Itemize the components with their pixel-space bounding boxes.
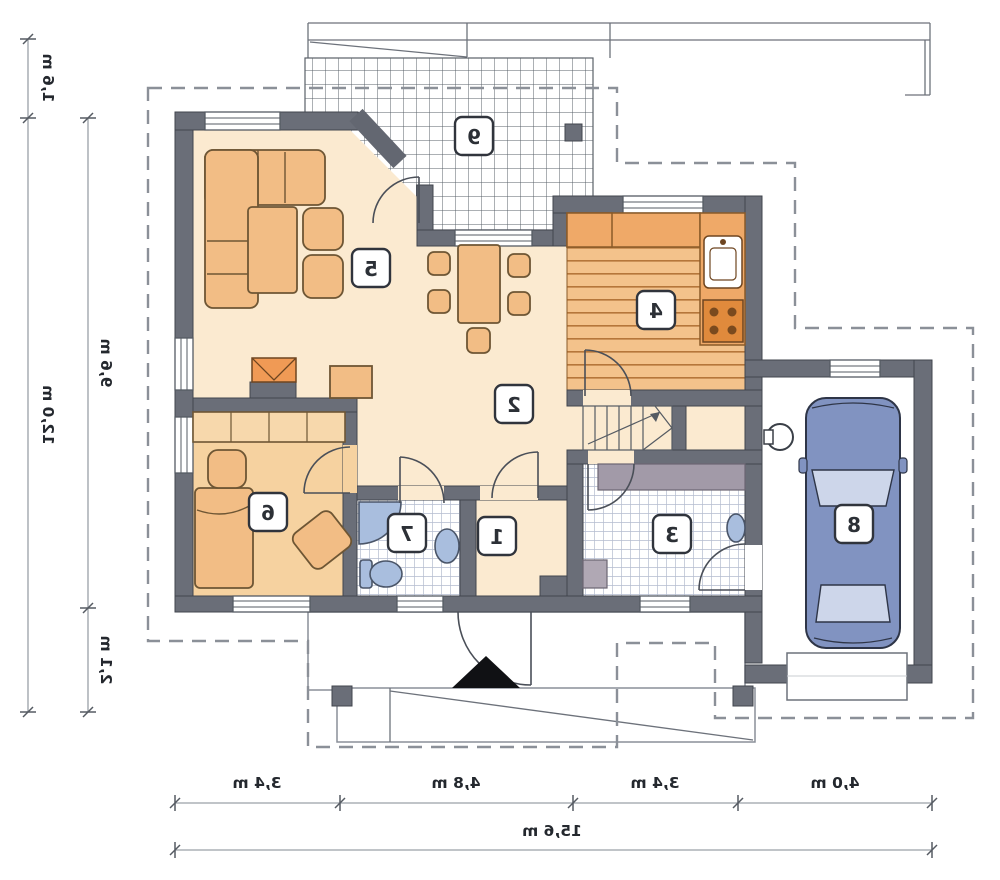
porch-post — [733, 686, 753, 706]
armchair — [303, 255, 343, 298]
room-label-1: 1 — [478, 517, 516, 555]
window — [233, 596, 310, 612]
left-dim-ticks — [20, 34, 96, 717]
window — [455, 230, 532, 246]
svg-text:6: 6 — [261, 501, 275, 525]
utility-sink — [727, 514, 745, 542]
kitchen-sink — [704, 236, 742, 288]
room-label-8: 8 — [835, 505, 873, 543]
toilet — [360, 560, 402, 588]
svg-text:2: 2 — [507, 393, 521, 417]
garage-door — [787, 653, 907, 700]
terrace-post — [565, 124, 582, 141]
dim-bottom-4: 4,0 m — [810, 774, 859, 792]
window — [640, 596, 690, 612]
room-label-6: 6 — [249, 493, 287, 531]
washbasin — [435, 529, 459, 563]
room-label-3: 3 — [653, 515, 691, 553]
svg-text:4: 4 — [649, 299, 663, 323]
coffee-table — [248, 207, 297, 293]
room-label-9: 9 — [455, 117, 493, 155]
tv-cabinet — [330, 366, 372, 398]
svg-text:8: 8 — [847, 513, 861, 537]
window — [623, 196, 703, 213]
chair — [428, 252, 450, 275]
window — [175, 338, 193, 390]
chair — [508, 254, 530, 277]
window — [175, 417, 193, 473]
room-label-4: 4 — [637, 291, 675, 329]
armchair — [303, 208, 343, 250]
window — [397, 596, 443, 612]
svg-text:7: 7 — [400, 522, 414, 546]
bedside-table — [208, 450, 246, 488]
room-label-7: 7 — [388, 514, 426, 552]
kitchen-fridge — [567, 213, 612, 247]
porch-post — [332, 686, 352, 706]
chair — [508, 292, 530, 315]
window — [205, 112, 280, 130]
chair — [467, 328, 490, 353]
floor-plan-drawing: 1,6 m 12,0 m 9,6 m 2,1 m 3,4 m 4,8 m 3,4… — [0, 0, 1000, 880]
dim-bottom-1: 3,4 m — [232, 774, 281, 792]
dim-bottom-total: 15,6 m — [522, 822, 582, 840]
bed — [195, 488, 253, 588]
dim-bottom-2: 4,8 m — [431, 774, 480, 792]
svg-text:1: 1 — [490, 525, 504, 549]
svg-text:9: 9 — [467, 125, 481, 149]
svg-text:5: 5 — [364, 257, 378, 281]
room-label-2: 2 — [495, 385, 533, 423]
dim-left-4: 2,1 m — [97, 635, 115, 684]
kitchen-stove — [703, 300, 743, 342]
utility-mat — [583, 560, 607, 588]
dim-left-2: 12,0 m — [39, 385, 57, 445]
fireplace — [252, 358, 296, 382]
dim-left-3: 9,6 m — [97, 338, 115, 387]
dim-left-1: 1,6 m — [39, 53, 57, 102]
dining-table — [458, 245, 500, 323]
room-label-5: 5 — [352, 249, 390, 287]
window — [830, 360, 880, 377]
utility-counter — [598, 464, 745, 490]
dim-bottom-3: 3,4 m — [630, 774, 679, 792]
svg-text:3: 3 — [665, 523, 679, 547]
floor-plan-page: 1,6 m 12,0 m 9,6 m 2,1 m 3,4 m 4,8 m 3,4… — [0, 0, 1000, 880]
chair — [428, 290, 450, 313]
